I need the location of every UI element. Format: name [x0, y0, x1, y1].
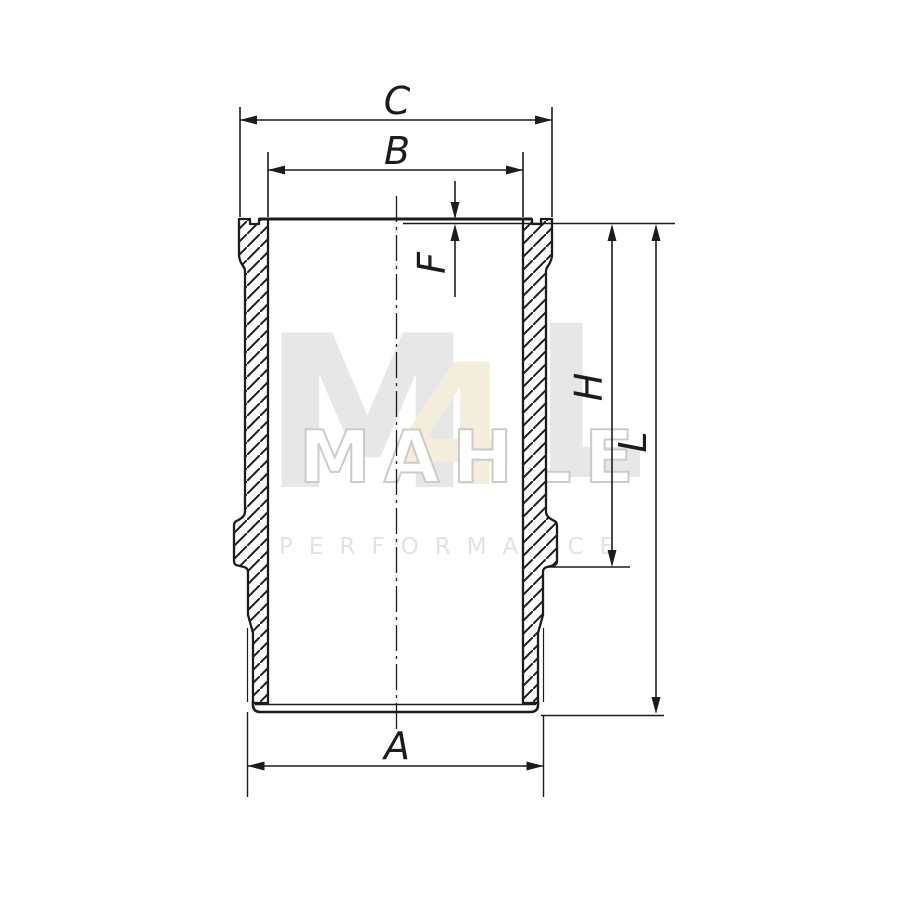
dim-label-H: H [567, 373, 611, 402]
dimension-A: A [248, 712, 544, 797]
technical-drawing-page: M L 4 MAHLE PERFORMANCE [0, 0, 900, 900]
dim-C-arrow-left [240, 116, 257, 125]
cylinder-liner-drawing: C B F H [0, 0, 900, 900]
dim-B-arrow-left [268, 166, 285, 175]
dim-label-B: B [384, 129, 410, 173]
dim-label-A: A [381, 724, 410, 768]
dim-L-arrow-down [652, 697, 661, 714]
dim-B-arrow-right [506, 166, 523, 175]
dim-F-arrow-up [451, 224, 460, 241]
dim-F-arrow-down [451, 202, 460, 219]
liner-bottom-rim [253, 701, 538, 712]
dim-label-L: L [611, 431, 655, 452]
dimension-L: L [541, 224, 664, 716]
liner-section [234, 196, 557, 731]
dim-label-C: C [384, 79, 411, 123]
dimension-B: B [268, 129, 523, 217]
liner-left-wall [234, 219, 268, 703]
dim-L-arrow-up [652, 224, 661, 241]
dim-A-arrow-right [527, 762, 544, 771]
dim-label-F: F [410, 251, 454, 274]
dim-H-arrow-up [608, 224, 617, 241]
dim-C-arrow-right [535, 116, 552, 125]
dimension-H: H [548, 224, 630, 567]
dim-A-arrow-left [248, 762, 265, 771]
dim-H-arrow-down [608, 550, 617, 567]
liner-right-wall [523, 219, 557, 703]
